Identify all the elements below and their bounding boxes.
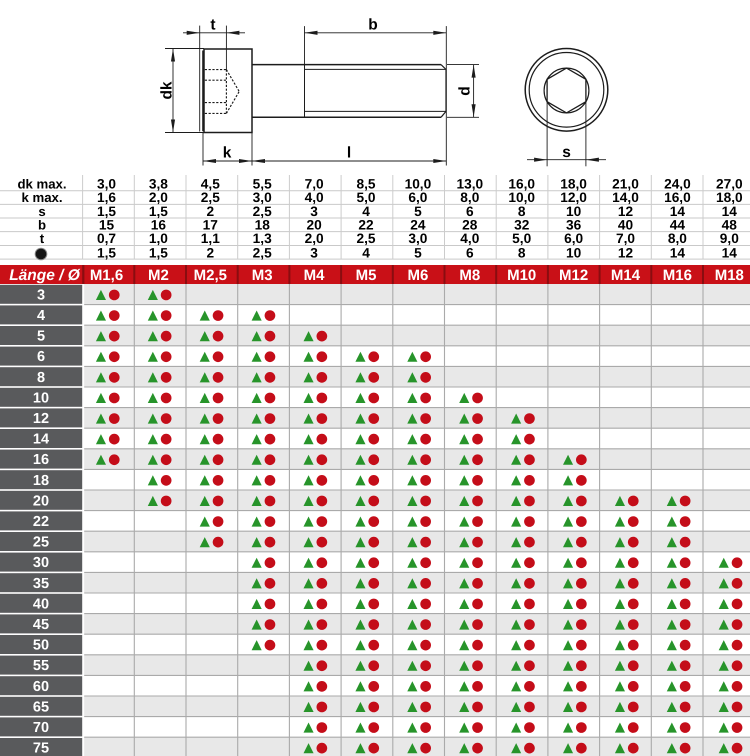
svg-text:60: 60 [33,679,49,695]
svg-text:45: 45 [33,617,49,633]
svg-text:22: 22 [33,514,49,530]
svg-text:M2: M2 [148,267,169,284]
svg-text:18: 18 [33,473,49,489]
svg-text:10: 10 [33,390,49,406]
svg-text:4,0: 4,0 [460,231,479,246]
svg-text:1,0: 1,0 [149,231,168,246]
svg-text:5: 5 [37,329,45,345]
svg-text:4: 4 [37,308,45,324]
svg-text:40: 40 [618,217,634,232]
svg-text:d: d [457,86,474,95]
svg-text:14: 14 [670,245,686,260]
svg-text:36: 36 [566,217,582,232]
svg-text:32: 32 [514,217,530,232]
svg-text:10: 10 [566,245,582,260]
svg-text:14: 14 [722,245,738,260]
svg-text:Länge / Ø: Länge / Ø [9,267,81,284]
svg-text:44: 44 [670,217,686,232]
svg-text:4: 4 [362,245,370,260]
svg-text:24: 24 [410,217,426,232]
svg-text:20: 20 [306,217,322,232]
svg-text:70: 70 [33,720,49,736]
svg-text:40: 40 [33,596,49,612]
svg-text:b: b [38,217,46,232]
svg-text:8,0: 8,0 [668,231,687,246]
svg-text:55: 55 [33,658,49,674]
svg-text:M6: M6 [407,267,428,284]
svg-text:6: 6 [466,245,474,260]
svg-text:1,5: 1,5 [97,245,116,260]
svg-text:5,0: 5,0 [512,231,531,246]
svg-text:30: 30 [33,555,49,571]
svg-text:5: 5 [414,245,422,260]
svg-text:50: 50 [33,638,49,654]
svg-text:12: 12 [618,245,634,260]
svg-text:7,0: 7,0 [616,231,635,246]
svg-text:16: 16 [33,452,49,468]
svg-text:35: 35 [33,576,49,592]
svg-text:dk: dk [159,81,176,99]
svg-text:9,0: 9,0 [720,231,739,246]
svg-text:M12: M12 [559,267,588,284]
svg-text:2: 2 [206,245,214,260]
svg-text:8: 8 [518,245,526,260]
svg-text:22: 22 [358,217,374,232]
svg-text:3: 3 [310,245,318,260]
svg-text:25: 25 [33,535,49,551]
svg-text:M1,6: M1,6 [90,267,123,284]
svg-text:12: 12 [33,411,49,427]
svg-text:M8: M8 [459,267,480,284]
svg-text:M16: M16 [663,267,692,284]
svg-text:M10: M10 [507,267,536,284]
svg-text:18: 18 [255,217,271,232]
svg-text:b: b [368,17,377,34]
svg-text:15: 15 [99,217,115,232]
svg-text:0,7: 0,7 [97,231,116,246]
svg-text:l: l [347,145,351,162]
svg-text:3,0: 3,0 [408,231,427,246]
svg-text:75: 75 [33,741,49,756]
svg-text:16: 16 [151,217,167,232]
svg-text:17: 17 [203,217,219,232]
svg-text:2,5: 2,5 [253,245,272,260]
svg-text:M4: M4 [304,267,325,284]
svg-text:M18: M18 [715,267,744,284]
svg-text:s: s [562,144,571,161]
svg-text:28: 28 [462,217,478,232]
svg-text:2,5: 2,5 [356,231,375,246]
svg-text:48: 48 [722,217,738,232]
svg-text:8: 8 [37,370,45,386]
svg-text:6,0: 6,0 [564,231,583,246]
svg-text:M14: M14 [611,267,641,284]
svg-text:M3: M3 [252,267,273,284]
svg-text:2,0: 2,0 [305,231,324,246]
svg-text:6: 6 [37,349,45,365]
svg-text:1,5: 1,5 [149,245,168,260]
svg-text:t: t [210,17,215,34]
svg-text:t: t [40,231,45,246]
svg-text:M2,5: M2,5 [194,267,227,284]
svg-text:1,3: 1,3 [253,231,272,246]
svg-text:14: 14 [33,432,49,448]
svg-text:1,1: 1,1 [201,231,220,246]
svg-text:k: k [223,145,232,162]
svg-text:3: 3 [37,287,45,303]
svg-text:65: 65 [33,699,49,715]
svg-text:M5: M5 [356,267,377,284]
svg-text:20: 20 [33,493,49,509]
